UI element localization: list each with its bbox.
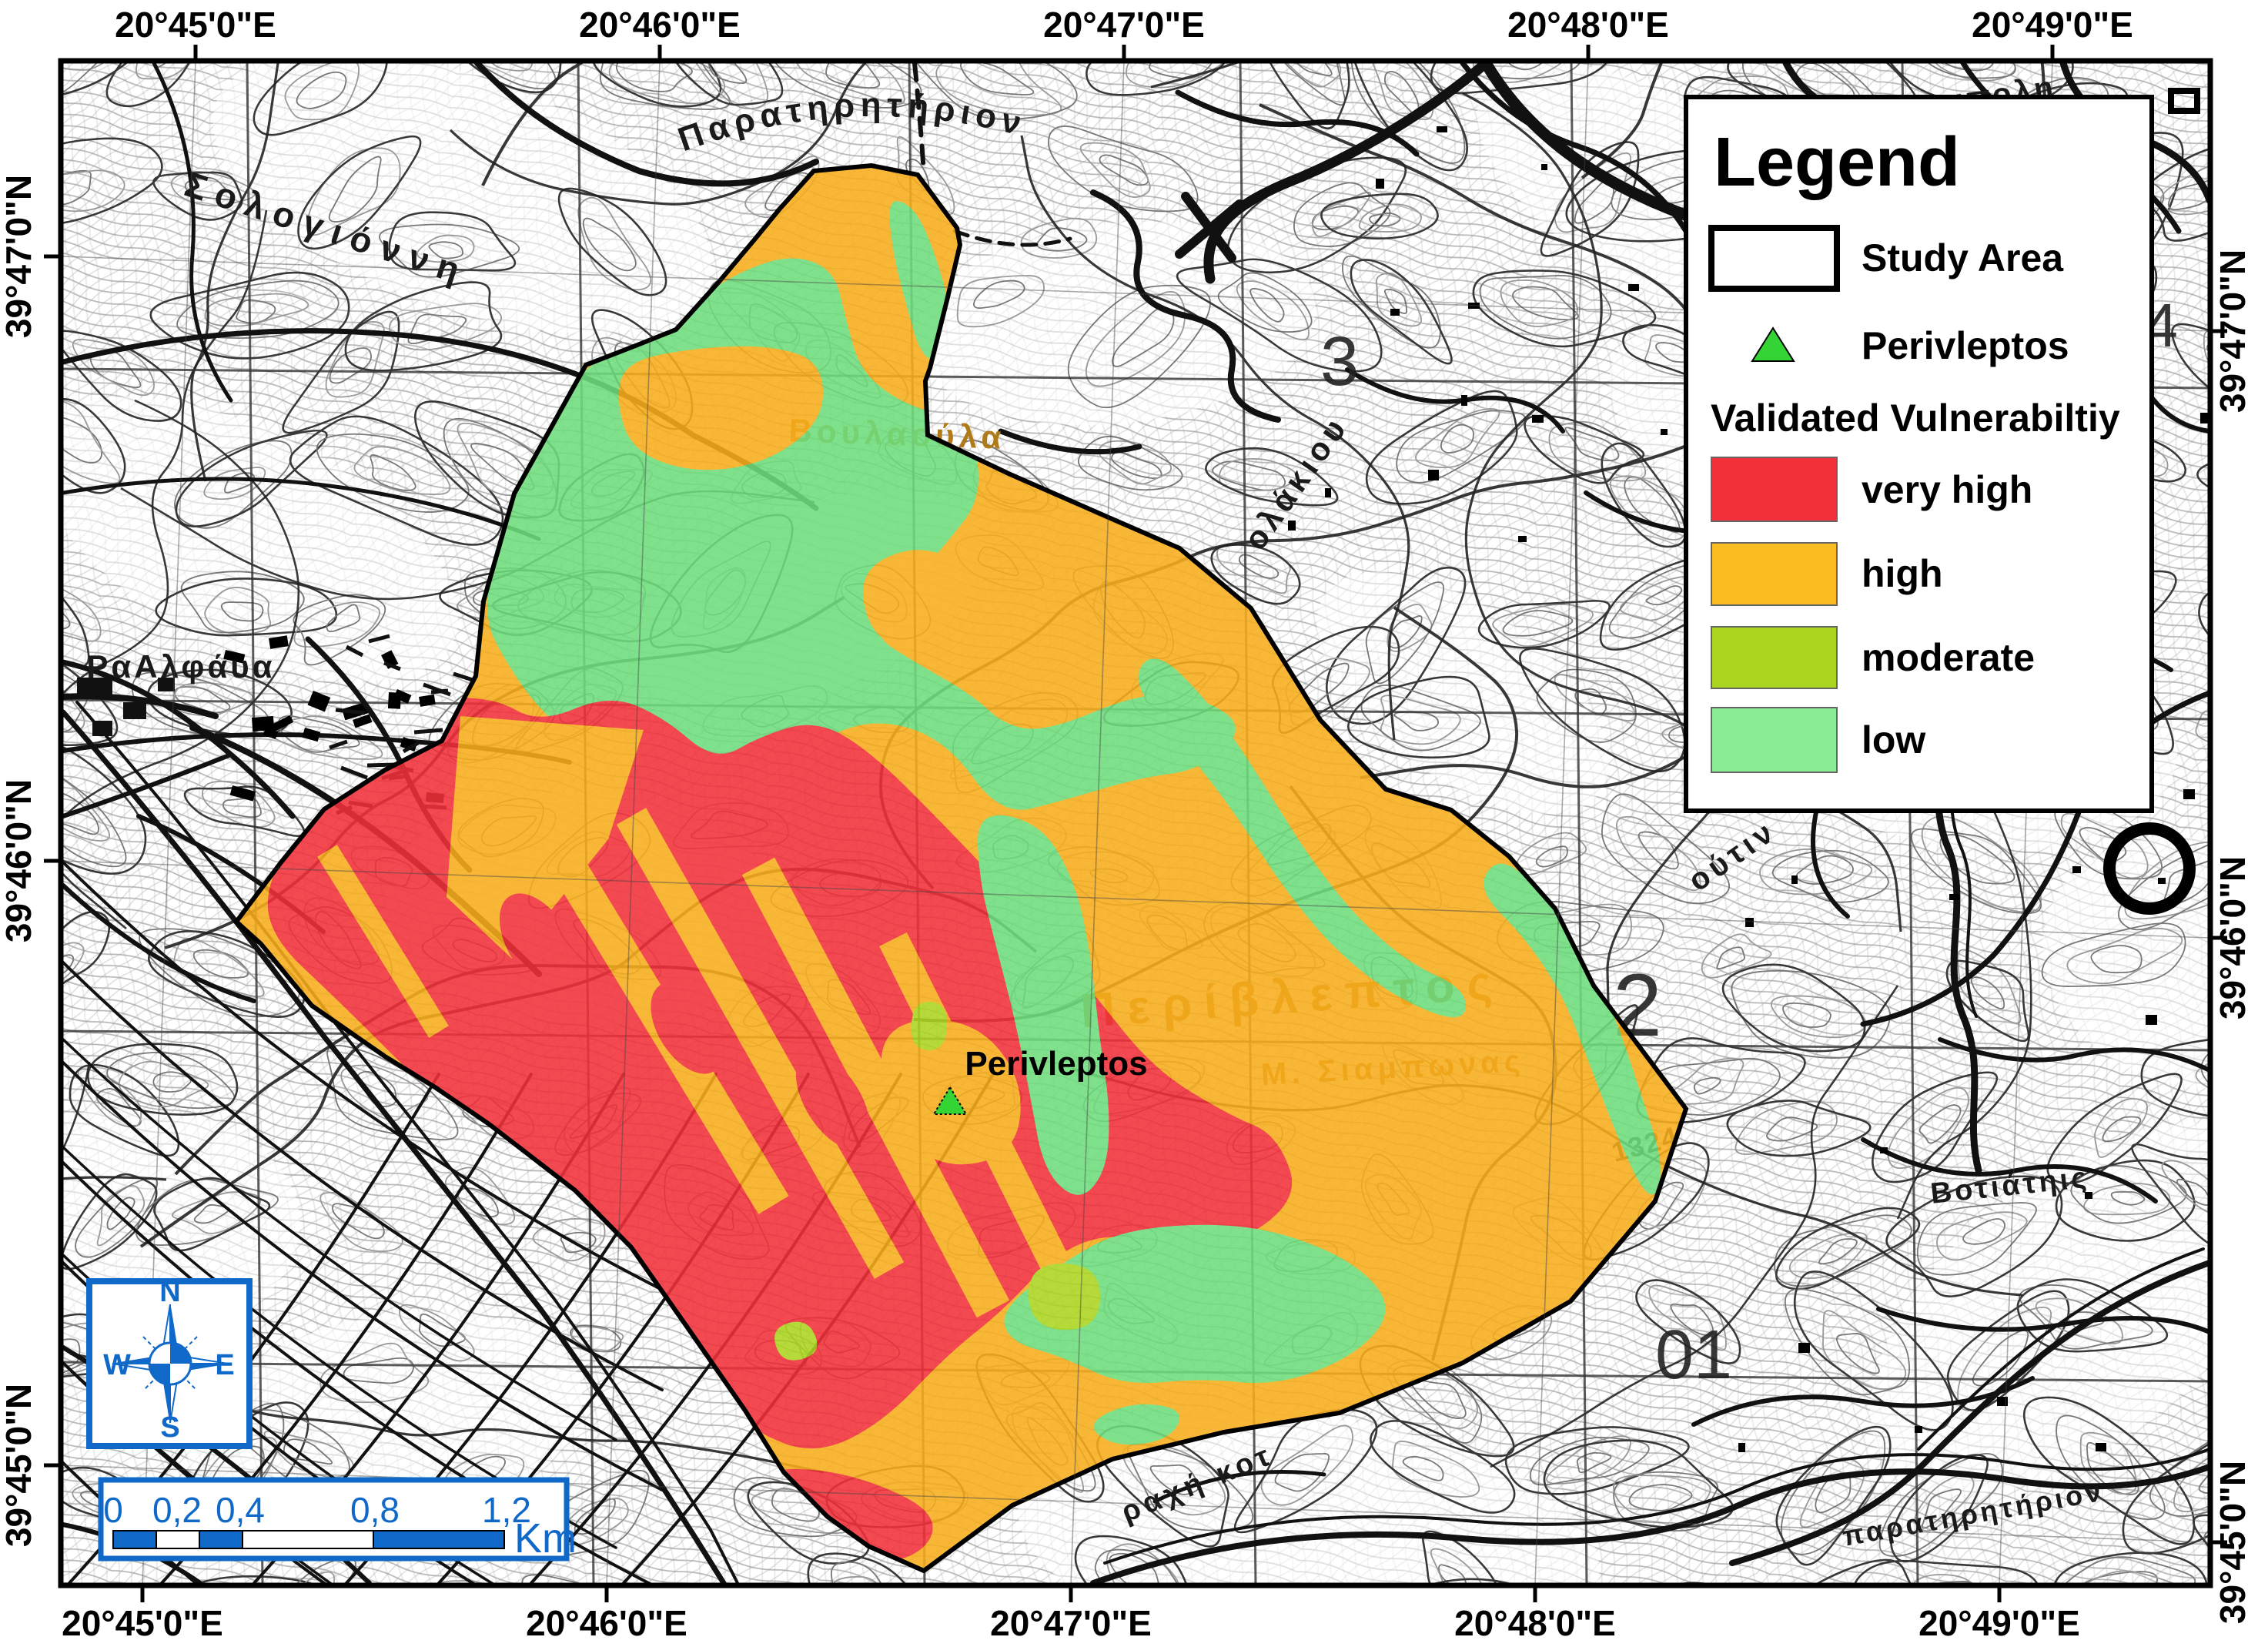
svg-text:N: N [159,1276,180,1308]
svg-text:20°46'0"E: 20°46'0"E [579,5,741,45]
svg-text:ΡαΑλφάυα: ΡαΑλφάυα [86,648,275,685]
svg-text:20°46'0"E: 20°46'0"E [526,1603,687,1643]
svg-text:moderate: moderate [1862,636,2035,679]
svg-text:39°46'0"N: 39°46'0"N [0,779,38,942]
svg-text:very high: very high [1862,468,2032,511]
svg-text:3: 3 [1320,323,1359,400]
svg-text:Perivleptos: Perivleptos [965,1045,1147,1083]
svg-text:E: E [215,1349,234,1381]
svg-text:0,2: 0,2 [152,1490,202,1530]
svg-text:20°48'0"E: 20°48'0"E [1507,5,1669,45]
svg-text:Legend: Legend [1714,124,1960,201]
svg-text:39°45'0"N: 39°45'0"N [0,1384,38,1547]
svg-text:Km: Km [514,1515,577,1562]
svg-text:high: high [1862,552,1943,595]
svg-text:20°49'0"E: 20°49'0"E [1918,1603,2080,1643]
svg-text:Perivleptos: Perivleptos [1862,324,2069,367]
svg-text:Validated Vulnerabiltiy: Validated Vulnerabiltiy [1711,397,2120,440]
svg-text:39°47'0"N: 39°47'0"N [0,175,38,338]
svg-text:S: S [160,1411,179,1444]
svg-text:0: 0 [103,1490,123,1530]
svg-text:39°46'0"N: 39°46'0"N [2213,856,2253,1019]
svg-text:01: 01 [1655,1317,1732,1394]
svg-text:20°45'0"E: 20°45'0"E [62,1603,223,1643]
svg-text:low: low [1862,718,1925,762]
svg-text:39°45'0"N: 39°45'0"N [2213,1461,2253,1624]
svg-text:20°47'0"E: 20°47'0"E [990,1603,1152,1643]
svg-text:0,8: 0,8 [350,1490,400,1530]
svg-text:20°49'0"E: 20°49'0"E [1972,5,2133,45]
svg-text:0,4: 0,4 [216,1490,265,1530]
svg-text:W: W [103,1349,131,1381]
svg-text:20°45'0"E: 20°45'0"E [115,5,276,45]
svg-text:20°48'0"E: 20°48'0"E [1454,1603,1616,1643]
svg-text:20°47'0"E: 20°47'0"E [1043,5,1205,45]
svg-text:Study Area: Study Area [1862,236,2064,280]
svg-text:39°47'0"N: 39°47'0"N [2213,249,2253,413]
